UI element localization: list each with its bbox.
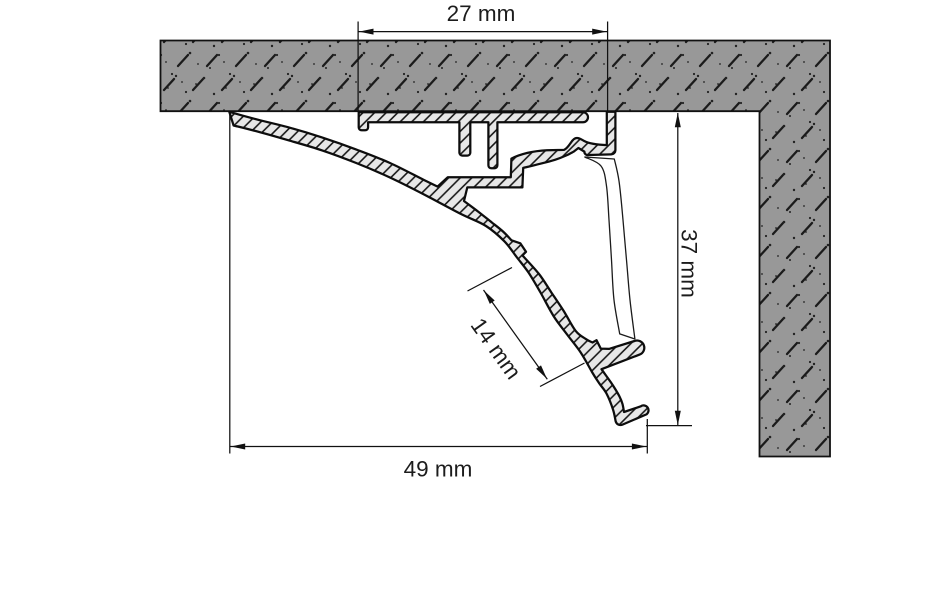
svg-text:27 mm: 27 mm — [447, 1, 516, 26]
svg-text:49 mm: 49 mm — [404, 457, 473, 482]
svg-text:37 mm: 37 mm — [677, 229, 702, 298]
